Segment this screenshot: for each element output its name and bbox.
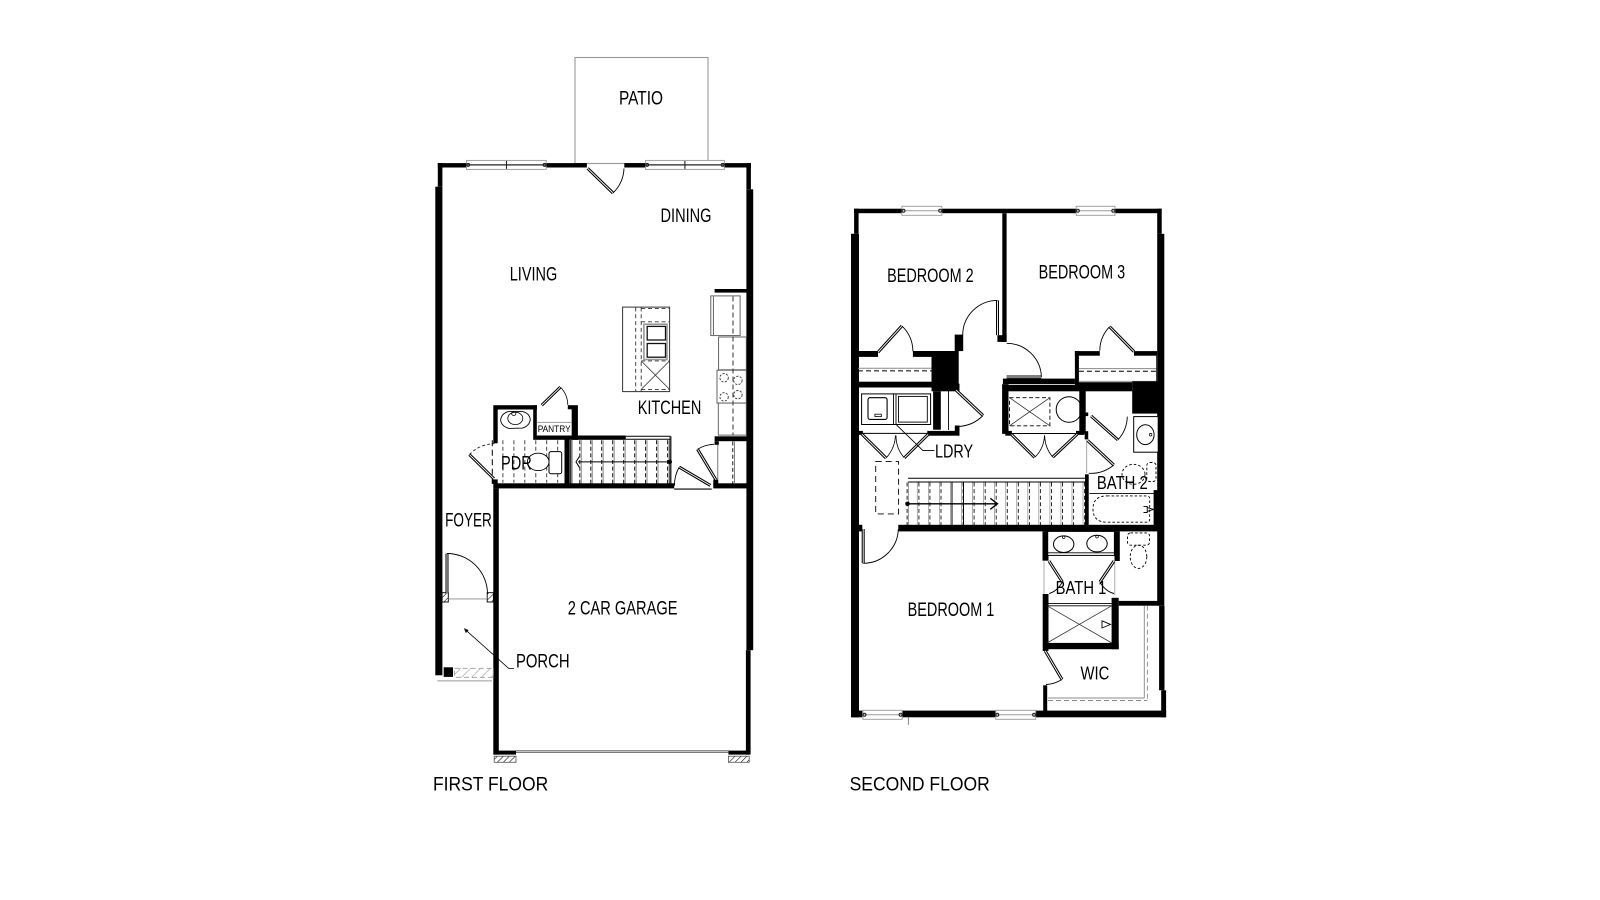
svg-text:FIRST FLOOR: FIRST FLOOR <box>433 774 548 796</box>
svg-text:PATIO: PATIO <box>619 89 663 110</box>
svg-text:PANTRY: PANTRY <box>538 424 571 434</box>
svg-text:BEDROOM 3: BEDROOM 3 <box>1039 263 1126 284</box>
svg-text:LIVING: LIVING <box>510 265 558 286</box>
svg-text:BEDROOM 1: BEDROOM 1 <box>908 600 995 621</box>
svg-text:FOYER: FOYER <box>445 510 492 531</box>
svg-text:2 CAR GARAGE: 2 CAR GARAGE <box>568 598 678 619</box>
svg-text:PORCH: PORCH <box>516 652 570 673</box>
svg-text:BATH 2: BATH 2 <box>1097 473 1148 493</box>
svg-text:BEDROOM 2: BEDROOM 2 <box>887 266 974 287</box>
svg-text:LDRY: LDRY <box>935 440 973 461</box>
svg-text:PDR: PDR <box>501 454 532 475</box>
svg-text:SECOND FLOOR: SECOND FLOOR <box>850 773 990 795</box>
svg-text:DINING: DINING <box>661 206 712 227</box>
svg-text:BATH 1: BATH 1 <box>1056 578 1107 598</box>
svg-text:WIC: WIC <box>1081 662 1110 683</box>
svg-text:KITCHEN: KITCHEN <box>638 398 702 419</box>
